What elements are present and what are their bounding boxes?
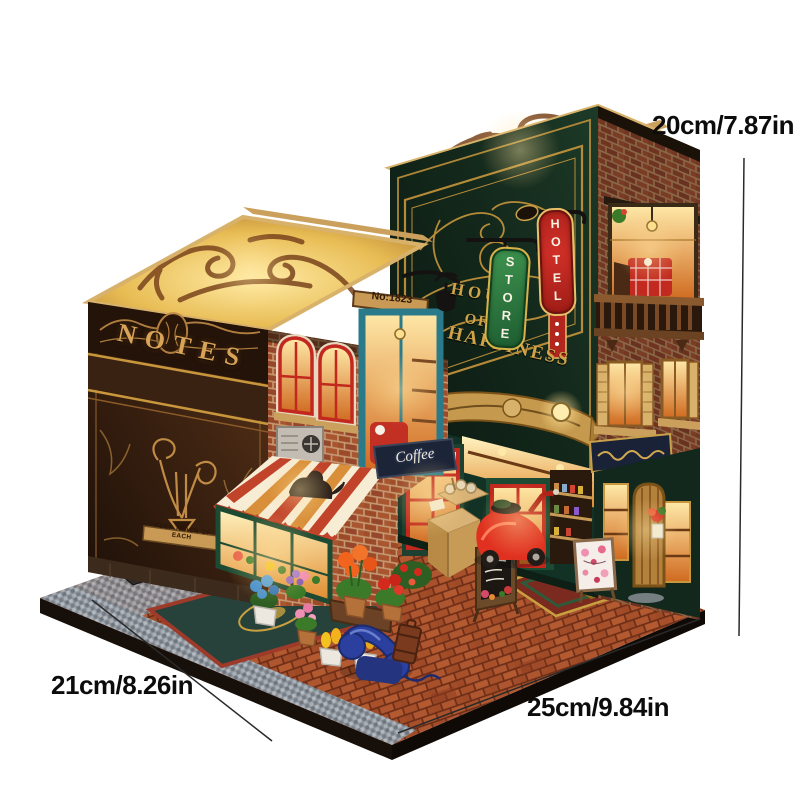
lantern bbox=[539, 390, 583, 434]
product-photo: 20cm/7.87in 21cm/8.26in 25cm/9.84in NOTE… bbox=[0, 0, 800, 800]
height-dimension-label: 20cm/7.87in bbox=[616, 110, 800, 141]
air-conditioner bbox=[277, 427, 323, 462]
arched-window-1 bbox=[274, 338, 318, 426]
store-hanging-sign: STORE bbox=[483, 246, 531, 352]
dimension-line-height bbox=[739, 158, 744, 636]
hotel-hanging-sign: HOTEL bbox=[536, 207, 577, 316]
arched-window-2 bbox=[314, 346, 358, 434]
width-dimension-label: 25cm/9.84in bbox=[496, 692, 700, 723]
depth-dimension-label: 21cm/8.26in bbox=[30, 670, 214, 701]
